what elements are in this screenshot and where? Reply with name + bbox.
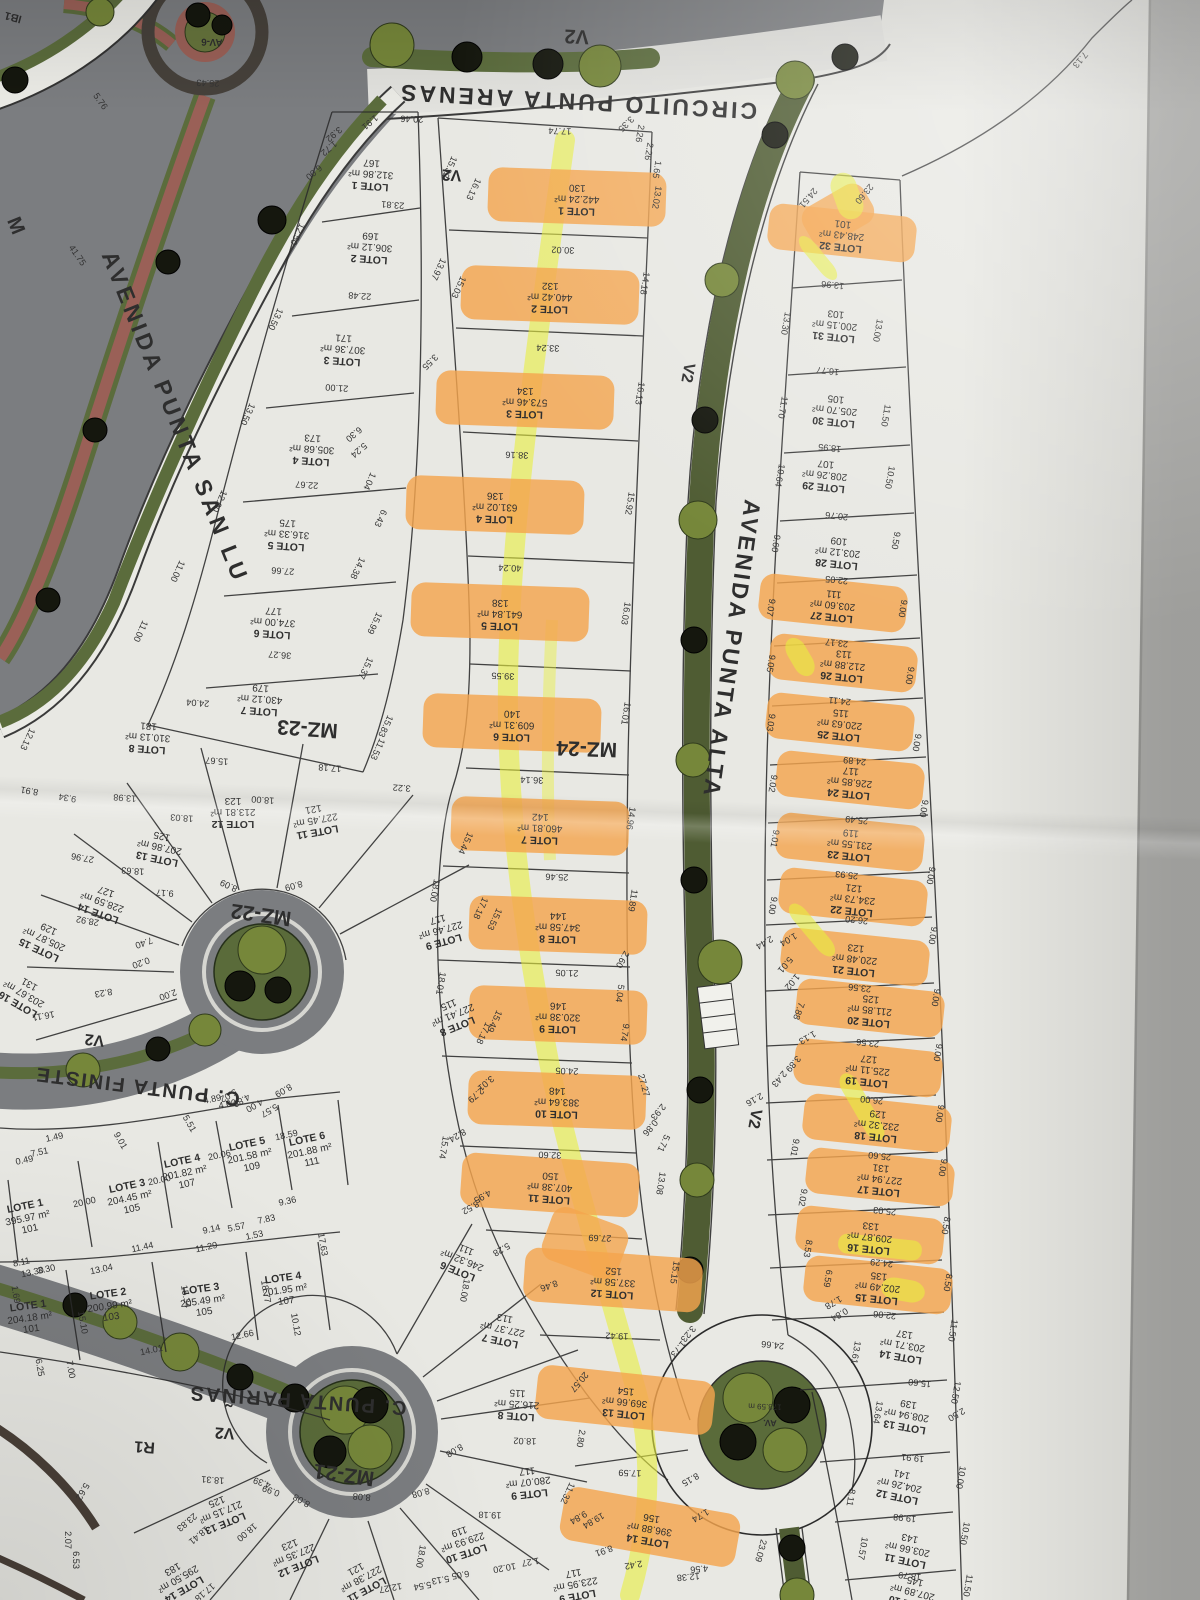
tree-dark-icon [36, 588, 60, 612]
lot-label-line: 107 [817, 457, 835, 470]
road-tag-v2: V2 [744, 1108, 764, 1130]
tree-icon [763, 1428, 807, 1472]
lot-label-line: 609.31 m² [489, 718, 535, 731]
tree-icon [776, 61, 814, 99]
dimension-label: 17.59 [618, 1468, 641, 1479]
crosswalk [697, 983, 738, 1049]
lot-label-line: 152 [605, 1264, 623, 1276]
dimension-label: 3.22 [393, 782, 412, 793]
dimension-label: 21.05 [555, 968, 578, 979]
tree-dark-icon [258, 206, 286, 234]
tree-dark-icon [692, 407, 718, 433]
lot-label-line: 123 [847, 941, 865, 954]
tree-icon [189, 1014, 221, 1046]
lot-label-line: LOTE 2 [350, 252, 388, 267]
dimension-label: 33.24 [536, 343, 559, 354]
dimension-label: 15.67 [205, 755, 229, 767]
lot-label-line: 117 [842, 764, 859, 777]
lot-label-line: 130 [568, 182, 585, 194]
tree-dark-icon [779, 1535, 805, 1561]
lot-label-line: 117 [518, 1464, 535, 1477]
lot-label-line: 148 [548, 1085, 565, 1097]
tree-dark-icon [681, 627, 707, 653]
lot-label-line: LOTE 5 [267, 539, 305, 554]
lot-label-line: 320.38 m² [535, 1010, 581, 1023]
lot-label-line: 460.81 m² [517, 821, 563, 834]
road-tag-v2: V2 [214, 1423, 235, 1441]
lot-label-line: LOTE 3 [506, 407, 543, 420]
lot-label-line: 101 [834, 217, 852, 230]
tree-dark-icon [156, 250, 180, 274]
lot-label-line: 177 [265, 604, 283, 616]
tree-dark-icon [83, 418, 107, 442]
lot-label-line: 121 [845, 881, 863, 894]
lot-label-line: 132 [541, 280, 558, 292]
lot-label-line: 154 [617, 1384, 635, 1397]
road-tag-v2: V2 [441, 165, 462, 183]
lot-label-line: LOTE 6 [493, 730, 530, 743]
tree-dark-icon [212, 15, 232, 35]
lot-label-line: LOTE 7 [521, 833, 558, 846]
lot-label-line: 171 [335, 331, 353, 343]
tree-dark-icon [832, 44, 858, 70]
tree-icon [723, 1373, 773, 1423]
road-tag-v2: V2 [677, 362, 697, 384]
dimension-label: 27.66 [271, 565, 295, 577]
dimension-label: 22.48 [348, 290, 372, 302]
lot-label-line: 113 [835, 647, 852, 660]
tree-icon [579, 45, 621, 87]
road-tag-v2: V2 [84, 1030, 105, 1049]
dimension-label: 24.04 [186, 697, 210, 709]
lot-label-line: 146 [549, 1000, 566, 1012]
lot-label-line: 573.46 m² [502, 395, 548, 408]
lot-label-line: LOTE 3 [323, 354, 361, 369]
dimension-label: 8.08 [352, 1491, 371, 1503]
dimension-label: 13.98 [113, 792, 137, 804]
dimension-label: 17.74 [548, 126, 571, 137]
block-label-mz23: MZ-23 [276, 715, 338, 742]
lot-label-line: 440.42 m² [527, 290, 573, 303]
dimension-label: 21.00 [325, 382, 349, 394]
lot-label-line: 144 [549, 910, 566, 922]
lot-label-line: 631.02 m² [472, 500, 518, 513]
lot-label-line: 213.81 m² [210, 806, 256, 817]
dimension-label: 18.02 [513, 1436, 536, 1447]
lot-label-line: 138 [491, 597, 508, 609]
road-tag-v2: V2 [564, 24, 590, 47]
road-tag-r1: R1 [134, 1437, 156, 1455]
dimension-label: 25.46 [545, 872, 568, 883]
dimension-label: 36.14 [520, 775, 543, 786]
tree-icon [238, 926, 286, 974]
roundabout-label-av: AV. [763, 1418, 777, 1428]
dimension-label: 40.24 [498, 563, 521, 574]
dimension-label: 2.07 [63, 1531, 73, 1549]
lot-label-line: 136 [486, 490, 503, 502]
tree-icon [705, 263, 739, 297]
lot-label-line: LOTE 2 [531, 302, 568, 315]
roundabout-area-label: 173.59 m [748, 1401, 782, 1411]
tree-icon [161, 1333, 199, 1371]
dimension-label: 18.31 [201, 1474, 225, 1486]
lot-label-line: 109 [830, 534, 848, 547]
block-label-mz24: MZ-24 [556, 736, 618, 761]
lot-label-line: 142 [531, 811, 548, 823]
lot-label-line: 173 [304, 431, 322, 443]
dimension-label: 36.27 [268, 649, 292, 661]
dimension-label: 4.56 [690, 1563, 709, 1575]
lot-label-line: 123 [224, 795, 241, 806]
tree-icon [679, 501, 717, 539]
lot-label-line: LOTE 7 [240, 704, 278, 719]
lot-label-line: 103 [827, 307, 845, 320]
tree-icon [86, 0, 114, 26]
tree-icon [370, 23, 414, 67]
lot-label-line: 135 [870, 1269, 888, 1282]
lot-label-line: 127 [860, 1052, 878, 1065]
dimension-label: 22.67 [295, 479, 319, 491]
lot-label-line: 111 [825, 587, 842, 600]
lot-label-line: 167 [363, 156, 381, 168]
lot-label-line: LOTE 1 [558, 204, 595, 217]
dimension-label: 18.63 [121, 865, 145, 877]
lot-label-line: LOTE 8 [497, 1409, 535, 1424]
lot-label-line: 442.24 m² [554, 192, 600, 205]
dimension-label: 20.46 [400, 114, 423, 125]
lot-label-line: LOTE 1 [351, 179, 389, 194]
lot-label-line: 181 [140, 719, 158, 731]
dimension-label: 39.55 [491, 671, 514, 682]
dimension-label: 32.60 [538, 1150, 561, 1161]
lot-label-line: 347.58 m² [535, 920, 581, 933]
lot-label-line: LOTE 8 [539, 932, 576, 945]
dimension-label: 18.00 [251, 794, 275, 806]
dimension-label: 18.03 [170, 812, 194, 824]
lot-label-line: 133 [862, 1219, 880, 1232]
road-tag-av6: AV-6 [201, 36, 223, 48]
lot-label-line: 134 [516, 385, 533, 397]
dimension-label: 38.16 [505, 450, 528, 461]
lot-label-line: LOTE 9 [539, 1022, 576, 1035]
tree-dark-icon [452, 42, 482, 72]
lot-label-line: 641.84 m² [477, 607, 523, 620]
lot-label-line: LOTE 12 [212, 818, 255, 830]
dimension-label: 30.02 [551, 245, 574, 256]
lot-label-line: 169 [362, 229, 380, 241]
lot-label-line: LOTE 4 [292, 454, 330, 469]
tree-dark-icon [2, 67, 28, 93]
lot-label-line: 105 [827, 392, 845, 405]
tree-dark-icon [146, 1037, 170, 1061]
tree-dark-icon [533, 49, 563, 79]
dimension-label: 24.05 [555, 1066, 578, 1077]
dimension-label: 27.69 [588, 1233, 611, 1244]
plat-map: 30.0233.2438.1640.2439.5536.1425.4621.05… [0, 0, 1200, 1600]
lot-label-line: 129 [869, 1107, 887, 1120]
dimension-label: 17.18 [318, 762, 342, 774]
dimension-label: 6.53 [71, 1551, 81, 1569]
tree-dark-icon [687, 1077, 713, 1103]
tree-dark-icon [225, 971, 255, 1001]
lot-label-line: 140 [503, 708, 520, 720]
lot-label-line: 175 [279, 516, 297, 528]
lot-label-line: 131 [872, 1161, 890, 1174]
lot-label-line: 115 [832, 706, 849, 719]
lot-label-line: LOTE 8 [128, 742, 166, 757]
dimension-label: 25.43 [196, 78, 219, 89]
tree-icon [348, 1425, 392, 1469]
lot-label-line: LOTE 5 [481, 619, 518, 632]
dimension-label: 19.18 [478, 1510, 501, 1521]
tree-dark-icon [681, 867, 707, 893]
lot-label-line: LOTE 4 [476, 512, 513, 525]
tree-dark-icon [762, 122, 788, 148]
tree-dark-icon [720, 1424, 756, 1460]
lot-label-line: 179 [252, 681, 270, 693]
plat-map-photo: 30.0233.2438.1640.2439.5536.1425.4621.05… [0, 0, 1200, 1600]
tree-icon [680, 1163, 714, 1197]
lot-label-line: 115 [509, 1386, 526, 1398]
dimension-label: 23.81 [381, 199, 405, 211]
lot-label-line: LOTE 10 [535, 1107, 578, 1120]
tree-dark-icon [265, 977, 291, 1003]
dimension-label: 19.42 [605, 1331, 628, 1342]
lot-label-line: LOTE 6 [253, 627, 291, 642]
lot-label-line: 119 [842, 826, 859, 839]
tree-icon [698, 940, 742, 984]
lot-label-line: 125 [862, 992, 880, 1005]
lot-label-line: 383.64 m² [534, 1095, 580, 1108]
tree-dark-icon [186, 3, 210, 27]
dimension-label: 9.17 [156, 887, 175, 898]
lot-label-line: 150 [542, 1169, 560, 1181]
